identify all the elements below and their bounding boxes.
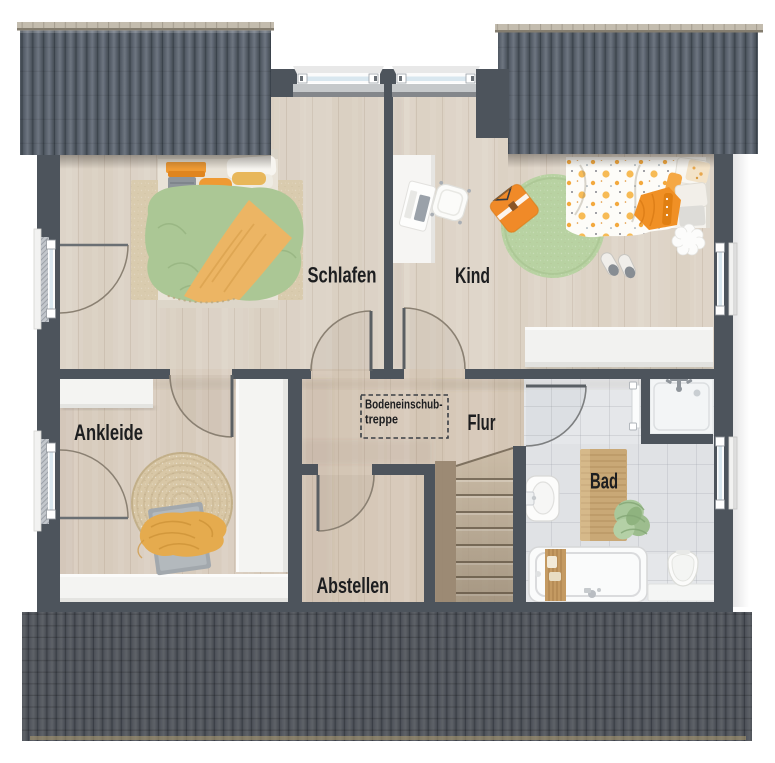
svg-text:Bodeneinschub-: Bodeneinschub- — [365, 397, 443, 412]
svg-text:treppe: treppe — [365, 412, 398, 427]
svg-text:Abstellen: Abstellen — [317, 573, 390, 598]
svg-text:Ankleide: Ankleide — [74, 420, 143, 445]
svg-text:Bad: Bad — [590, 469, 618, 494]
svg-text:Kind: Kind — [455, 263, 490, 288]
svg-text:Flur: Flur — [468, 410, 496, 435]
svg-text:Schlafen: Schlafen — [308, 263, 377, 288]
